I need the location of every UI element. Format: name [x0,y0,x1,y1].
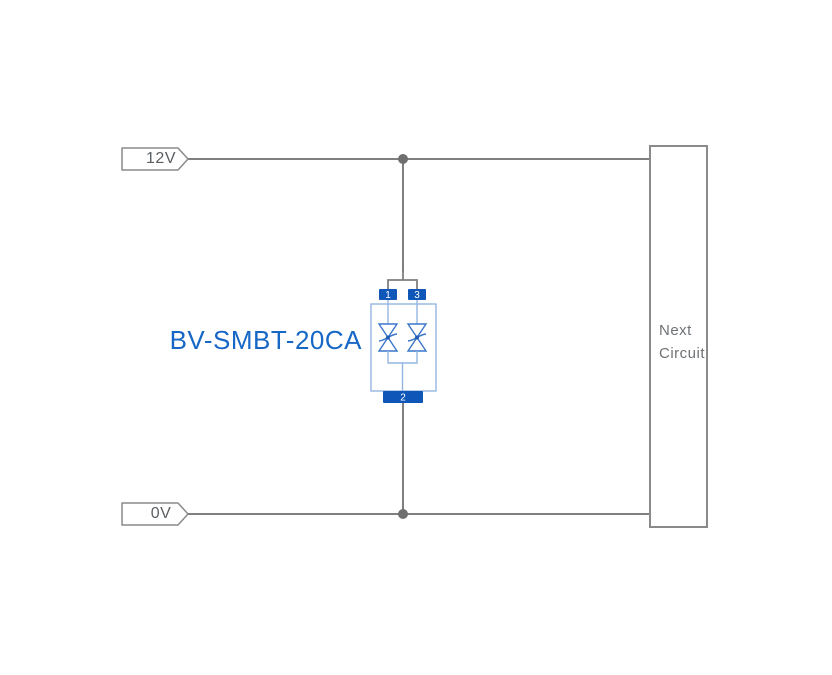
wire-join-bracket [388,351,417,363]
component-label: BV-SMBT-20CA [140,325,362,356]
pin-3-number: 3 [414,290,420,301]
rail-tag-0v: 0V [121,502,189,526]
pin-1-number: 1 [385,290,391,301]
next-circuit-line1: Next [659,319,705,342]
tvs-diode-component: 1 3 2 [365,270,441,412]
pin-2-number: 2 [400,393,406,404]
pin-2: 2 [383,391,423,404]
next-circuit-label: Next Circuit [659,319,705,365]
rail-label-0v: 0V [121,502,191,526]
wire-stem-top [402,159,404,272]
wire-bottom-rail [186,513,650,515]
next-circuit-line2: Circuit [659,342,705,365]
wire-pin-split-bracket [388,280,417,289]
tvs-diode-right [408,324,426,351]
diode-center-dot [415,336,419,340]
next-circuit-box: Next Circuit [649,145,708,528]
junction-dot-top [398,154,408,164]
pin-1: 1 [379,289,397,301]
circuit-diagram: 12V 0V BV-SMBT-20CA 1 3 [0,0,832,675]
tvs-diode-left [379,324,397,351]
rail-label-12v: 12V [121,147,191,171]
wire-stem-bottom [402,402,404,514]
pin-3: 3 [408,289,426,301]
rail-tag-12v: 12V [121,147,189,171]
wire-top-rail [186,158,650,160]
diode-center-dot [386,336,390,340]
junction-dot-bottom [398,509,408,519]
